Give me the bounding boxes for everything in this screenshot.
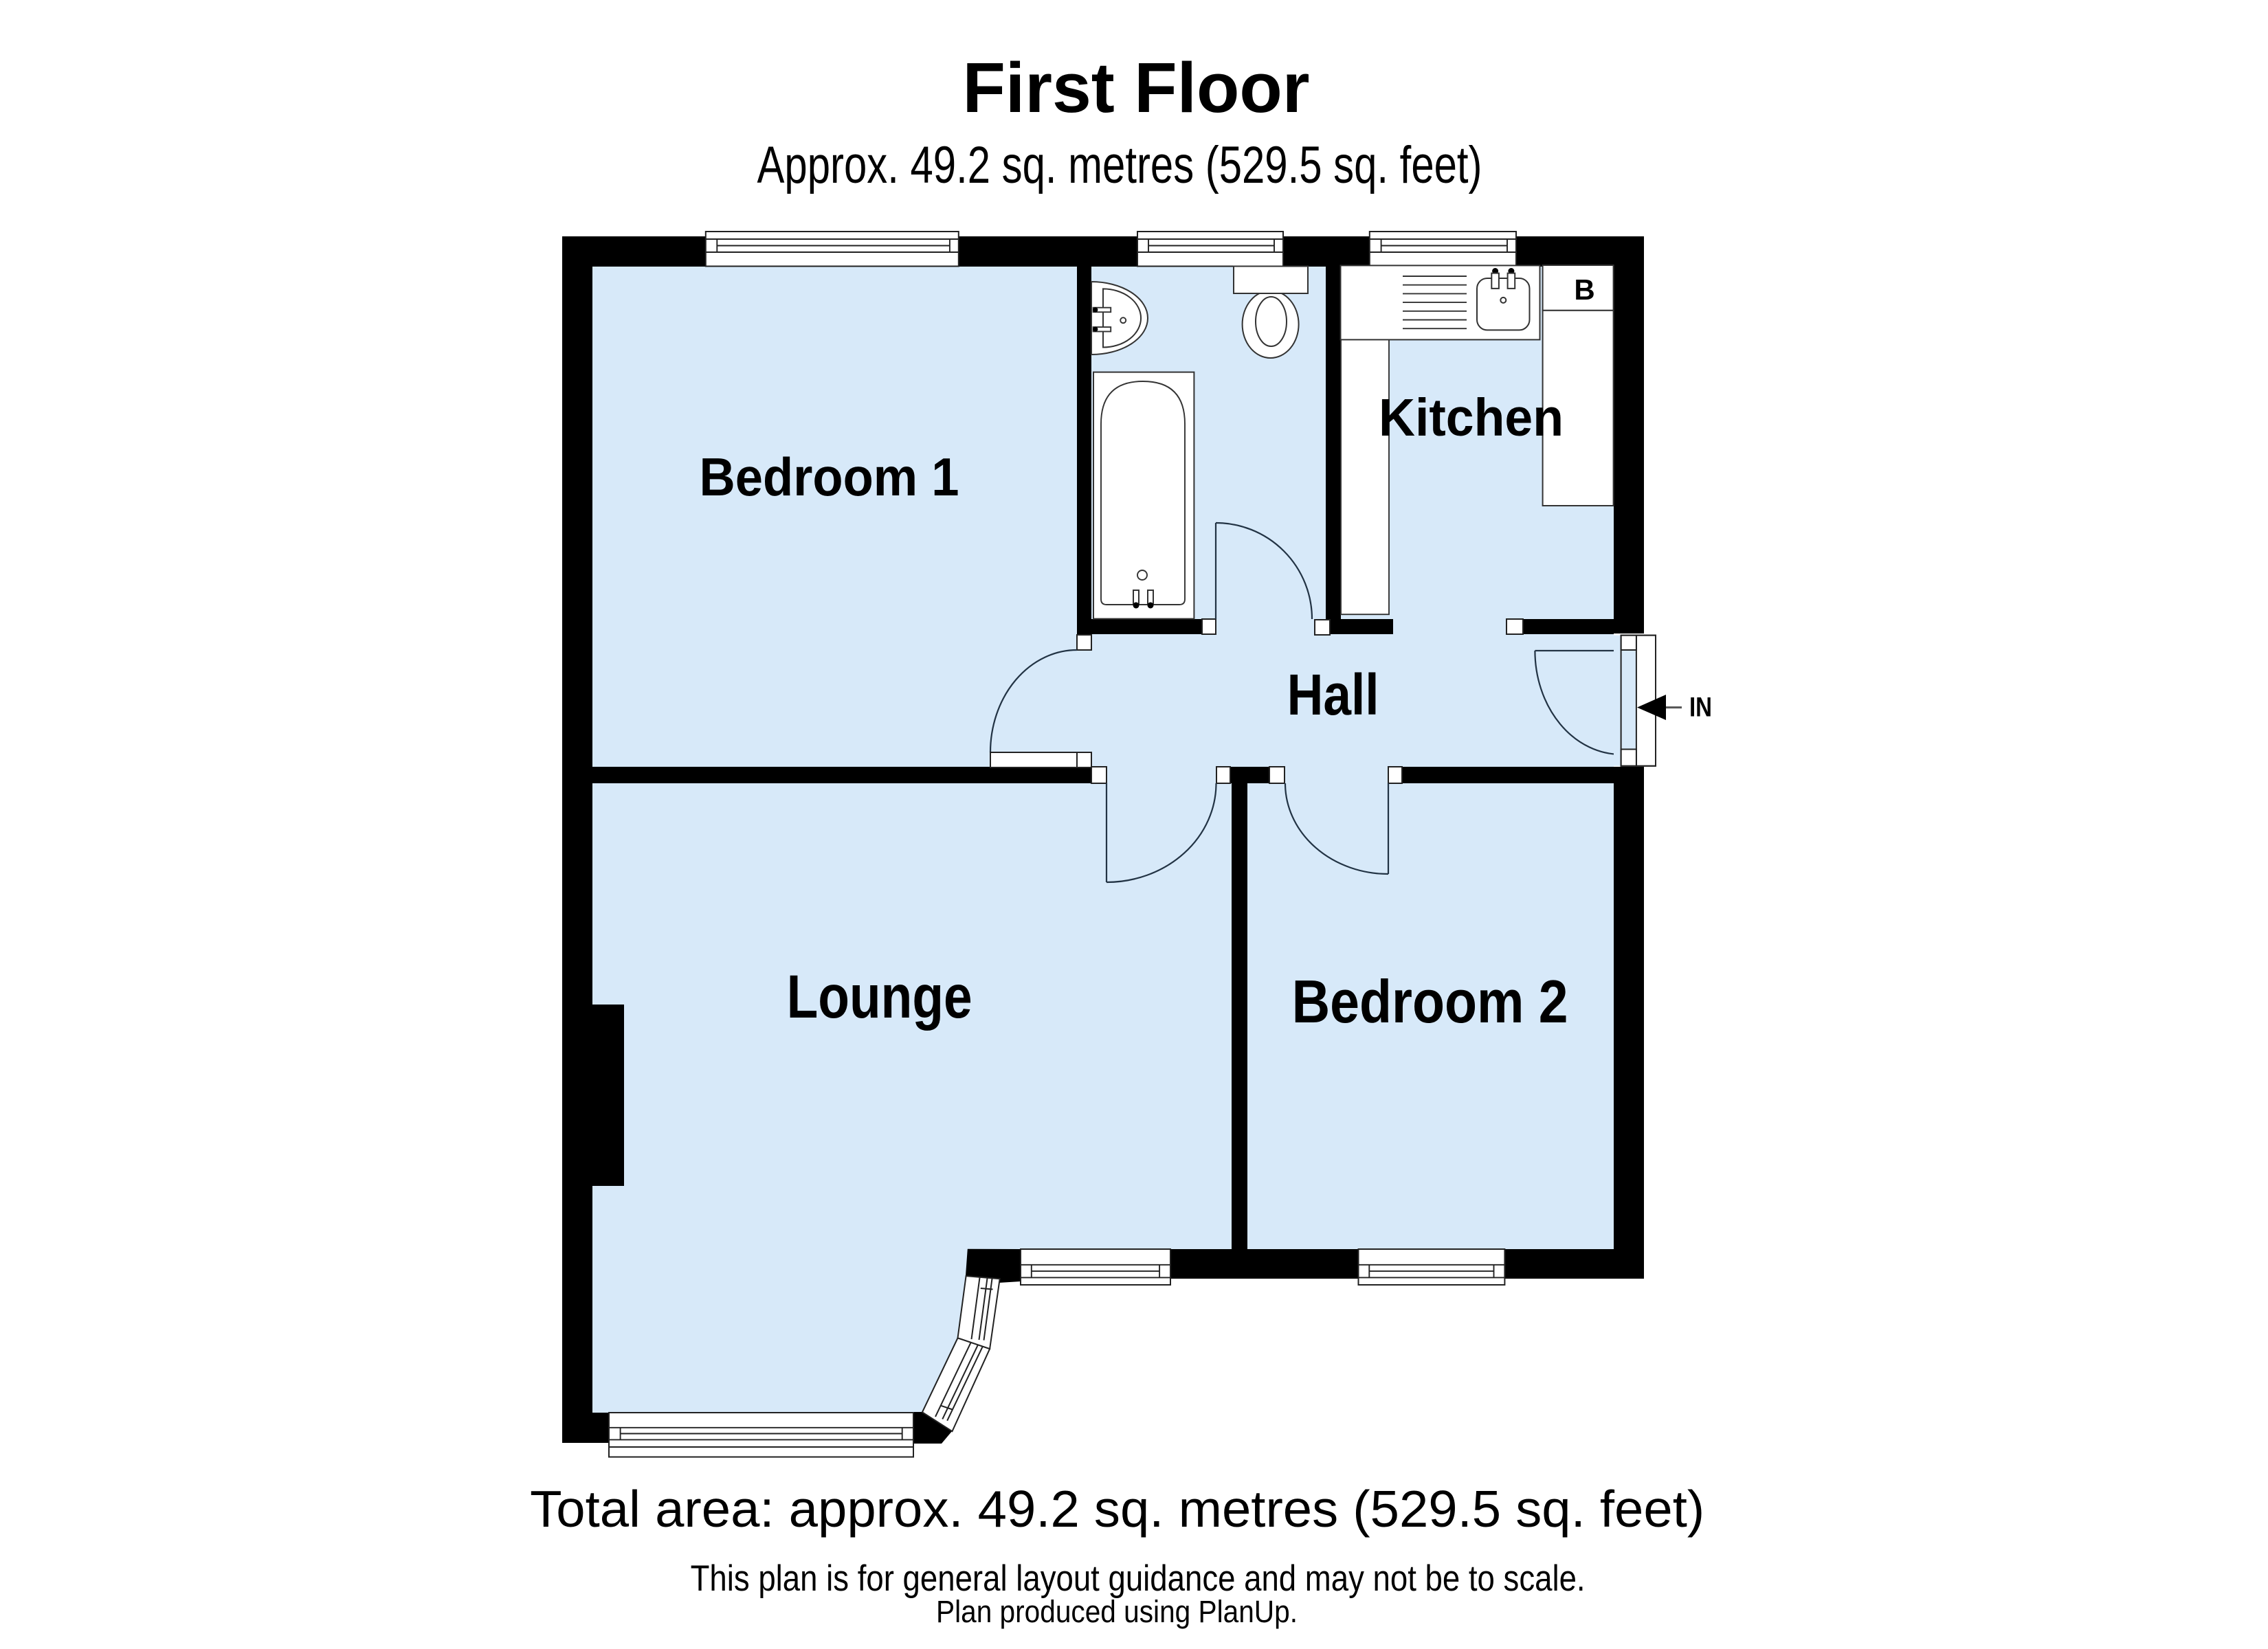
svg-text:Kitchen: Kitchen — [1379, 388, 1564, 447]
svg-text:First Floor: First Floor — [963, 48, 1310, 127]
svg-text:Hall: Hall — [1287, 662, 1379, 727]
svg-text:B: B — [1574, 273, 1594, 306]
svg-text:Total area: approx. 49.2 sq. m: Total area: approx. 49.2 sq. metres (529… — [530, 1480, 1704, 1538]
svg-text:IN: IN — [1689, 693, 1712, 723]
svg-text:Bedroom 1: Bedroom 1 — [700, 447, 959, 507]
svg-text:Approx. 49.2 sq. metres (529.5: Approx. 49.2 sq. metres (529.5 sq. feet) — [757, 136, 1482, 194]
svg-text:Lounge: Lounge — [787, 962, 972, 1031]
svg-text:Plan produced using PlanUp.: Plan produced using PlanUp. — [936, 1594, 1298, 1629]
svg-text:Bedroom 2: Bedroom 2 — [1292, 967, 1568, 1035]
svg-text:This plan is for general layou: This plan is for general layout guidance… — [691, 1558, 1586, 1599]
